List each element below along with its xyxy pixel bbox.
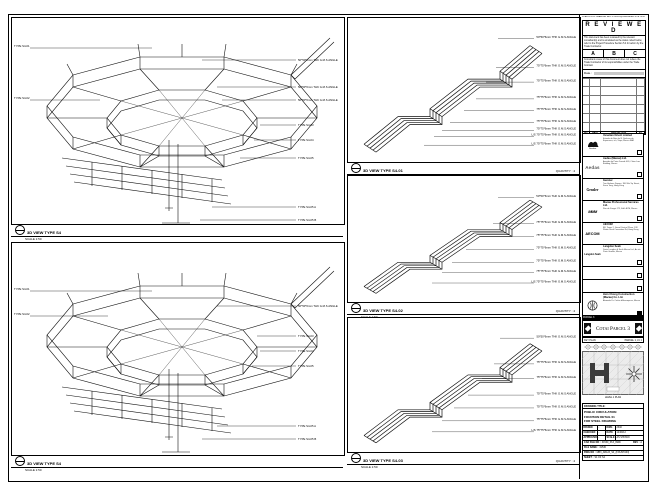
consultant-row-aedas: Aedas Aedas (Macau) Ltd. Avenida da Prai…	[582, 157, 644, 179]
stamp-received-line: 30 AUG 2012 DRAWING REC'D 0932 by ENGINE…	[582, 16, 645, 18]
canopy-wireframe-front: TYPE S4-01 TYPE S4-02 50*50*6mm THK G.M.…	[12, 18, 344, 224]
panel-label-p1: 3D VIEW TYPE S4 SCALE 1:50	[11, 225, 343, 241]
callout-label: TYPE S4-05 B	[298, 437, 316, 441]
contractor-address: Alameda Dr. Carlos d'Assumpcao, Macau	[603, 300, 642, 302]
callout-label: TYPE S4-03	[298, 334, 314, 338]
sheet-label: SHEET :	[584, 456, 593, 459]
aedas-logo-text: Aedas	[585, 165, 600, 170]
drawing-sheet-page: TYPE S4-01 TYPE S4-02 50*50*6mm THK G.M.…	[0, 0, 650, 488]
detail-bubble-icon	[351, 303, 361, 313]
callout-label: 75*75*6mm THK G.M.S ANGLE	[536, 107, 576, 111]
consultant-address: Estrada da Baia de N. Senhora da Esperan…	[603, 138, 642, 143]
callout-leaders	[424, 39, 534, 146]
drawing-title-line: FOR STEEL DRAWING	[584, 419, 642, 424]
review-checkbox	[637, 150, 643, 156]
callout-label: 75*75*6mm THK G.M.S ANGLE	[536, 127, 576, 131]
view-title: 3D VIEW TYPE S4-03	[363, 458, 403, 463]
callout-leaders	[432, 198, 534, 283]
consultant-row-empty	[582, 267, 644, 280]
project-name: Cotai Parcel 3	[592, 326, 634, 332]
revision-row	[583, 86, 645, 95]
consultant-address: Avenida da Praia Grande 409, China Law B…	[603, 161, 642, 166]
panel-label-m3: 3D VIEW TYPE S4-03 QUANTITY : 4 SCALE 1:…	[347, 453, 579, 469]
callout-label: 75*75*6mm THK G.M.S ANGLE	[536, 375, 576, 379]
callout-label: L/S 75*75*6mm THK G.M.S ANGLE	[531, 428, 576, 432]
panel-3d-view-s4-front: TYPE S4-01 TYPE S4-02 50*50*6mm THK G.M.…	[11, 17, 345, 225]
cad-file-label: CAD FILE NO :	[584, 441, 601, 444]
dwg-no-value: MB3_AB123_S4_(FOUNTAIN)	[597, 451, 630, 454]
review-checkbox	[637, 172, 643, 178]
callout-label: 75*75*6mm THK G.M.S ANGLE	[536, 64, 576, 68]
consultant-address: Davis Langdon & Seah Macau Ltd., Av. da …	[603, 249, 642, 254]
title-block-fields: DRAWN - DWG 2340 CHECKED - DATE 14/09/12…	[583, 426, 643, 441]
key-plan-map	[582, 351, 644, 395]
callout-leaders	[432, 338, 534, 432]
callout-label: 75*75*6mm THK G.M.S ANGLE	[536, 259, 576, 263]
panel-3d-view-s4-rear: TYPE S4-01 TYPE S4-02 50*50*6mm THK G.M.…	[11, 242, 345, 456]
status-option-c: C	[625, 50, 645, 57]
meinhardt-logo-text: MMM	[588, 209, 597, 214]
callout-label: TYPE S4-04	[298, 138, 314, 142]
reviewed-stamp: R E V I E W E D This document has been r…	[582, 20, 646, 135]
field-value: -	[598, 436, 606, 441]
venetian-logo-text: Venetian	[589, 148, 597, 150]
rev-label: REV :	[633, 441, 639, 444]
review-checkbox	[637, 238, 643, 244]
revision-row	[583, 78, 645, 87]
consultant-row-venetian: Venetian Venetian Orient Limited Estrada…	[582, 133, 644, 157]
panel-3d-view-s4-02: 50*50*6mm THK G.M.S ANGLE 75*75*6mm THK …	[347, 175, 581, 303]
revision-row	[583, 104, 645, 113]
venetian-logo-icon	[586, 140, 600, 148]
callout-label: TYPE S4-04	[298, 349, 314, 353]
callout-label: TYPE S4-01	[14, 44, 30, 48]
status-option-a: A	[583, 50, 604, 57]
field-label: APPROVED	[583, 436, 598, 441]
callout-label: TYPE S4-05 A	[298, 205, 316, 209]
callout-label: 75*75*6mm THK G.M.S ANGLE	[536, 360, 576, 364]
panel-label-p2: 3D VIEW TYPE S4 SCALE 1:50	[11, 456, 343, 472]
revision-table: NO. DATE DESCRIPTION BY	[583, 77, 645, 134]
callout-label: TYPE S4-01	[14, 287, 30, 291]
field-value: AS SHOWN	[616, 436, 643, 441]
callout-label: L/S 75*75*6mm THK G.M.S ANGLE	[531, 142, 576, 146]
review-checkbox	[637, 273, 643, 279]
angle-assembly-wireframe-1: 50*50*6mm THK G.M.S ANGLE 75*75*6mm THK …	[348, 18, 580, 162]
view-title: 3D VIEW TYPE S4	[27, 230, 61, 235]
callout-label: 50*50*6mm THK G.M.S ANGLE	[536, 194, 576, 198]
callout-label: 75*75*6mm THK G.M.S ANGLE	[536, 417, 576, 421]
callout-leaders	[30, 291, 296, 439]
quantity-label: QUANTITY : 4	[556, 459, 579, 463]
callout-label: L/S 75*75*6mm THK G.M.S ANGLE	[531, 133, 576, 137]
consultant-row-langdon-seah: Langdon Seah Langdon Seah Davis Langdon …	[582, 245, 644, 267]
drawing-sheet: TYPE S4-01 TYPE S4-02 50*50*6mm THK G.M.…	[8, 14, 649, 482]
callout-label: 50*50*6mm THK G.M.S ANGLE	[536, 335, 576, 339]
sheet-value: S4 OF S4	[594, 456, 605, 459]
callout-label: 50*50*6mm THK G.M.S ANGLE	[536, 35, 576, 39]
callout-label: 75*75*6mm THK G.M.S ANGLE	[536, 392, 576, 396]
project-banner: Cotai Parcel 3	[582, 320, 644, 337]
column-divider	[579, 15, 580, 479]
contractor-logo-icon	[587, 300, 598, 311]
callout-label: 75*75*6mm THK G.M.S ANGLE	[536, 119, 576, 123]
dwg-no-label: DWG NO :	[584, 451, 596, 454]
stamp-date-value-line	[594, 72, 644, 75]
view-title: 3D VIEW TYPE S4-01	[363, 168, 403, 173]
callout-label: 75*75*6mm THK G.M.S ANGLE	[536, 246, 576, 250]
panel-3d-view-s4-01: 50*50*6mm THK G.M.S ANGLE 75*75*6mm THK …	[347, 17, 581, 163]
callout-label: 75*75*6mm THK G.M.S ANGLE	[536, 95, 576, 99]
callout-label: 50*50*6mm THK G.M.S ANGLE	[298, 98, 338, 102]
angle-assembly-wireframe-2: 50*50*6mm THK G.M.S ANGLE 75*75*6mm THK …	[348, 176, 580, 302]
callout-label: 50*50*6mm THK G.M.S ANGLE	[298, 58, 338, 62]
callout-label: L/S 75*75*6mm THK G.M.S ANGLE	[531, 280, 576, 284]
detail-bubble-icon	[351, 453, 361, 463]
key-plan-caption: LEVEL 1 PLAN	[582, 396, 644, 399]
detail-bubble-icon	[15, 456, 25, 466]
gensler-logo-text: Gensler	[587, 188, 599, 192]
view-scale: SCALE 1:50	[347, 465, 579, 469]
consultant-address: Two Harbour Square, 180 Wai Yip Street, …	[603, 183, 642, 188]
status-option-b: B	[604, 50, 625, 57]
drawing-title: PUBLIC CIRCULATION FOUNTAIN DETAIL 01 FO…	[583, 409, 643, 426]
angle-assembly-wireframe-3: 50*50*6mm THK G.M.S ANGLE 75*75*6mm THK …	[348, 318, 580, 452]
stamp-body-1: This document has been reviewed by the r…	[583, 36, 645, 50]
rev-value: A	[640, 441, 642, 444]
aecom-logo-text: AECOM	[585, 232, 599, 236]
callout-label: 50*50*6mm THK G.M.S ANGLE	[298, 304, 338, 308]
callout-label: 75*75*6mm THK G.M.S ANGLE	[536, 404, 576, 408]
review-checkbox	[637, 286, 643, 292]
callout-label: 75*75*6mm THK G.M.S ANGLE	[536, 220, 576, 224]
callout-label: TYPE S4-05 B	[298, 218, 316, 222]
review-checkbox	[637, 260, 643, 266]
key-plan-parcel-label: PARCEL 1, LV 1	[625, 339, 642, 342]
panel-3d-view-s4-03: 50*50*6mm THK G.M.S ANGLE 75*75*6mm THK …	[347, 317, 581, 453]
review-checkbox	[637, 216, 643, 222]
consultant-address: 8/F, Tower 2, Grand Central Plaza, 138 S…	[603, 227, 642, 232]
quantity-label: QUANTITY : 4	[556, 309, 579, 313]
sheet-no-row: SHEET : S4 OF S4	[583, 456, 643, 460]
consultant-row-meinhardt: MMM Macau Professional Services Ltd. Rua…	[582, 201, 644, 223]
stamp-date-label: Date :	[584, 71, 592, 75]
view-title: 3D VIEW TYPE S4-02	[363, 308, 403, 313]
view-scale: SCALE 1:50	[11, 468, 343, 472]
consultant-list: Venetian Venetian Orient Limited Estrada…	[582, 133, 644, 318]
langdon-seah-logo-text: Langdon Seah	[584, 254, 600, 257]
view-title: 3D VIEW TYPE S4	[27, 461, 61, 466]
field-label: SCALE	[606, 436, 616, 441]
callout-label: 50*50*6mm THK G.M.S ANGLE	[298, 85, 338, 89]
callout-label: TYPE S4-03	[298, 123, 314, 127]
callout-label: TYPE S4-02	[14, 312, 30, 316]
revision-row	[583, 113, 645, 122]
detail-bubble-icon	[351, 163, 361, 173]
stamp-body-2: Consultant review of this document does …	[583, 58, 645, 70]
detail-bubble-icon	[15, 225, 25, 235]
callout-label: 75*75*6mm THK G.M.S ANGLE	[536, 233, 576, 237]
stamp-status-options: A B C	[583, 50, 645, 58]
review-checkbox	[637, 194, 643, 200]
callout-label: 75*75*6mm THK G.M.S ANGLE	[536, 269, 576, 273]
consultant-address: Rua de Xangai 175, Edif. ACM, Macau	[603, 208, 642, 210]
title-block: DRAWING TITLE: PUBLIC CIRCULATION FOUNTA…	[582, 403, 644, 461]
callout-label: TYPE S4-05 A	[298, 424, 316, 428]
canopy-wireframe-rear: TYPE S4-01 TYPE S4-02 50*50*6mm THK G.M.…	[12, 243, 344, 455]
callout-label: TYPE S4-05	[298, 364, 314, 368]
consultant-row-empty	[582, 280, 644, 293]
revision-row	[583, 122, 645, 131]
callout-label: TYPE S4-05	[298, 156, 314, 160]
reviewed-title: R E V I E W E D	[583, 21, 645, 36]
consultant-row-gensler: Gensler Gensler Two Harbour Square, 180 …	[582, 179, 644, 201]
grid-bubble-row	[582, 343, 644, 351]
file-name-value: 31530	[599, 446, 606, 449]
banner-ornament-icon	[584, 323, 591, 334]
consultant-row-aecom: AECOM AECOM 8/F, Tower 2, Grand Central …	[582, 223, 644, 245]
quantity-label: QUANTITY : 4	[556, 169, 579, 173]
cad-file-value: 31530_P13_9999	[602, 441, 621, 444]
callout-label: 75*75*6mm THK G.M.S ANGLE	[536, 78, 576, 82]
file-name-label: FILE NAME :	[584, 446, 598, 449]
revision-row	[583, 95, 645, 104]
banner-ornament-icon	[635, 323, 642, 334]
key-plan-label: KEY PLAN	[584, 339, 596, 342]
callout-label: TYPE S4-02	[14, 96, 30, 100]
view-scale: SCALE 1:50	[11, 237, 343, 241]
